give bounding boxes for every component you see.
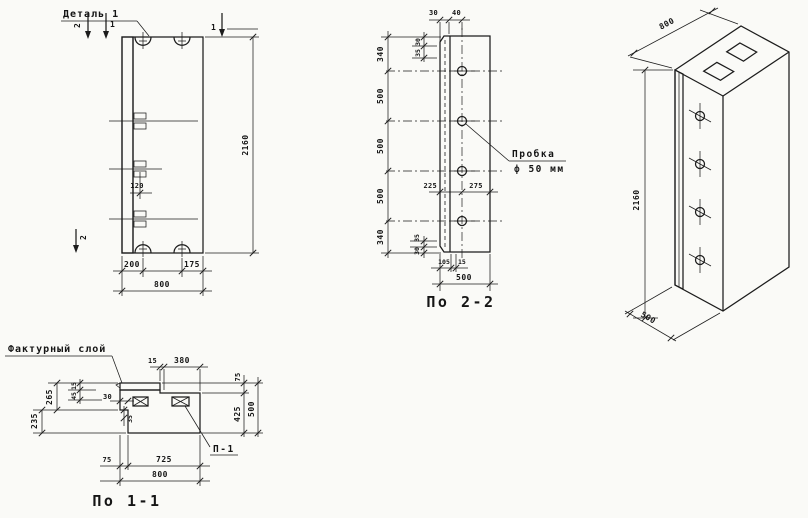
embedded-plate-icon — [133, 397, 189, 406]
dim-label: 105 — [438, 258, 450, 266]
section-mark-label: 2 — [73, 23, 82, 28]
plate-label: П-1 — [213, 444, 235, 455]
block-outline — [675, 26, 789, 311]
dim-label: 200 — [124, 260, 140, 269]
dim-label: 500 — [639, 310, 657, 326]
dim-label: 35 — [413, 234, 421, 242]
plug-circles — [689, 103, 711, 273]
dim-label: 15 — [70, 382, 78, 390]
dim-label: 35 — [126, 415, 134, 423]
dim-label: 75 — [102, 456, 111, 464]
plug-rows — [386, 67, 503, 226]
front-elevation-view: Деталь 1 2 1 1 2 120 2160 200 17 — [61, 9, 259, 296]
dim-left: 265 235 — [30, 380, 126, 436]
section-2-2-view: 30 40 30 35 340 500 500 500 340 225 275 … — [376, 9, 566, 311]
dim-label: 380 — [174, 356, 190, 365]
section-mark-label: 1 — [110, 20, 115, 29]
dim-mid: 225 275 — [423, 182, 498, 195]
dim-label: 800 — [658, 16, 676, 31]
panel-working-drawing: Деталь 1 2 1 1 2 120 2160 200 17 — [0, 0, 808, 518]
texture-layer-hatch — [120, 383, 160, 390]
dim-top: 15 380 — [148, 356, 208, 391]
plug-callout: Пробка ф 50 мм — [466, 124, 566, 175]
detail-callout-label: Деталь 1 — [63, 9, 119, 20]
dim-left-top-small: 30 35 — [412, 32, 437, 62]
dim-label: 30 — [103, 393, 112, 401]
dim-label: 235 — [30, 413, 39, 429]
section-mark-1-top-right: 1 — [211, 13, 258, 37]
dim-label: 175 — [184, 260, 200, 269]
dim-label: 45 — [70, 392, 78, 400]
dim-label: 275 — [469, 182, 483, 190]
dim-label: 500 — [376, 188, 385, 204]
dim-label: 2160 — [241, 134, 250, 155]
dim-iso-height: 2160 — [632, 67, 673, 321]
plug-leader — [466, 124, 509, 161]
dim-label: 500 — [376, 88, 385, 104]
dim-label: 500 — [376, 138, 385, 154]
dim-label: 15 — [458, 258, 466, 266]
view-title-section-1-1: По 1-1 — [92, 492, 161, 510]
panel-outline — [122, 37, 203, 253]
dim-step: 30 35 — [103, 393, 134, 426]
dim-label: 225 — [423, 182, 437, 190]
texture-label-leader — [112, 356, 122, 383]
dim-label: 725 — [156, 455, 172, 464]
dim-bottom: 75 725 800 — [100, 435, 210, 486]
dim-label: 30 — [414, 38, 422, 46]
dim-label: 340 — [376, 229, 385, 245]
lifting-loop-icon — [135, 32, 190, 49]
dim-label: 425 — [233, 406, 242, 422]
dim-label: 500 — [456, 273, 472, 282]
loop-recess-icon — [704, 62, 734, 80]
section-mark-label: 2 — [79, 235, 88, 240]
dim-label: 340 — [376, 46, 385, 62]
dim-label: 800 — [152, 470, 168, 479]
view-title-section-2-2: По 2-2 — [426, 293, 495, 311]
dim-label: 30 — [413, 247, 421, 255]
dim-label: 35 — [414, 49, 422, 57]
lifting-loop-icon — [135, 241, 190, 257]
section-1-1-view: Фактурный слой П-1 15 380 265 235 15 45 … — [5, 343, 263, 510]
dim-label: 15 — [148, 357, 157, 365]
dim-label: 30 — [429, 9, 438, 17]
technical-drawing-sheet: Деталь 1 2 1 1 2 120 2160 200 17 — [0, 0, 808, 518]
dim-label: 2160 — [632, 189, 641, 210]
isometric-view: 800 2160 500 — [625, 8, 789, 341]
dim-left-chain: 340 500 500 500 340 — [376, 31, 441, 258]
dim-bottom: 105 15 500 — [431, 254, 498, 291]
section-mark-label: 1 — [211, 23, 216, 32]
dim-left-bottom-small: 35 30 — [410, 234, 437, 258]
plate-leader — [185, 406, 210, 447]
dim-bottom-chain: 200 175 800 — [113, 256, 212, 296]
dim-label: 120 — [130, 182, 144, 190]
facade-texture-strip — [122, 37, 133, 253]
texture-layer-label: Фактурный слой — [8, 343, 106, 355]
dim-iso-width: 800 — [628, 8, 738, 68]
dim-label: 40 — [452, 9, 461, 17]
dim-label: 500 — [247, 401, 256, 417]
section-mark-2-bottom: 2 — [73, 229, 88, 253]
dim-right: 75 425 500 — [162, 372, 263, 437]
dim-height: 2160 — [205, 34, 259, 256]
dim-label: 265 — [45, 389, 54, 405]
plug-label-line1: Пробка — [512, 149, 555, 160]
dim-label: 75 — [234, 372, 242, 381]
dim-iso-depth: 500 — [625, 287, 720, 341]
dim-label: 800 — [154, 280, 170, 289]
loop-recess-icon — [727, 43, 757, 61]
plug-label-line2: ф 50 мм — [514, 164, 565, 175]
